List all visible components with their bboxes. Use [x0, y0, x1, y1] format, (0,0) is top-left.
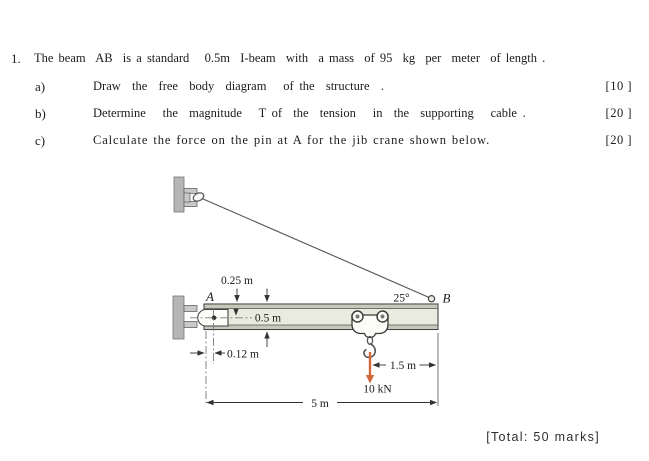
part-b-label: b) [35, 106, 46, 122]
label-05m: 0.5 m [255, 313, 281, 325]
trolley-hub-right [381, 315, 385, 319]
part-c-label: c) [35, 133, 45, 149]
part-c-row: c) Calculate the force on the pin at A f… [0, 133, 649, 149]
part-c-text: Calculate the force on the pin at A for … [93, 133, 490, 148]
part-a-marks: [10 ] [606, 79, 632, 94]
pin-bracket-upper-flange [184, 306, 197, 312]
label-point-b: B [443, 291, 451, 306]
label-point-a: A [205, 289, 214, 304]
label-012m: 0.12 m [227, 349, 259, 361]
part-c-marks: [20 ] [606, 133, 632, 148]
total-marks: [Total: 50 marks] [486, 430, 600, 444]
top-bracket-web [184, 193, 190, 202]
wall-plate-bottom [173, 296, 184, 339]
part-b-row: b) Determine the magnitude T of the tens… [0, 106, 649, 122]
label-5m: 5 m [311, 398, 329, 410]
part-a-text: Draw the free body diagram of the struct… [93, 79, 384, 94]
label-15m: 1.5 m [390, 360, 416, 372]
label-angle-25: 25° [393, 293, 410, 305]
load-arrow-head [366, 375, 374, 384]
part-a-row: a) Draw the free body diagram of the str… [0, 79, 649, 95]
question-statement: The beam AB is a standard 0.5m I-beam wi… [34, 51, 545, 66]
beam-top-flange [205, 305, 438, 309]
label-025m: 0.25 m [221, 275, 253, 287]
wall-plate-top [174, 177, 184, 212]
part-a-label: a) [35, 79, 45, 95]
jib-crane-diagram: 0.25 m A 25° B 0.5 m 0.12 m 1.5 m 10 kN … [165, 170, 465, 415]
pin-bracket-lower-flange [184, 322, 197, 328]
part-b-marks: [20 ] [606, 106, 632, 121]
trolley-hub-left [356, 315, 360, 319]
part-b-text: Determine the magnitude T of the tension… [93, 106, 526, 121]
cable-eyelet-b [428, 296, 434, 302]
label-10kn: 10 kN [363, 384, 392, 396]
beam-bottom-flange [205, 325, 438, 329]
question-number: 1. [11, 51, 21, 67]
